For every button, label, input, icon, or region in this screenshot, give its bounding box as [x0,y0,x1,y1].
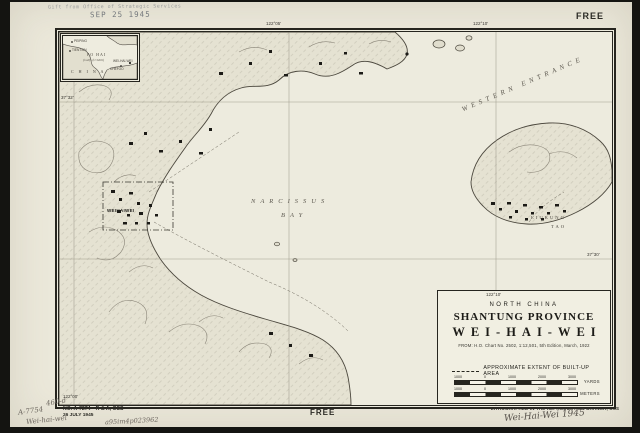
meters-tick: 1000 [454,387,462,391]
yards-tick: 1000 [508,375,516,379]
meters-tick: 2000 [538,387,546,391]
meridian-label-top-right: 122°10' [473,21,488,26]
bay-label-line1: NARCISSUS [251,198,329,205]
meters-bar [454,392,578,397]
inset-map: PEIPING TIENTSIN CHEFOO WEI-HAI-WEI PO H… [60,33,140,82]
meters-tick: 3000 [568,387,576,391]
island-label-tao: TAO [551,224,566,229]
bay-label-line2: BAY [281,212,307,219]
yards-tick: 3000 [568,375,576,379]
yards-tick-labels: 1000 0 1000 2000 3000 [454,375,576,379]
map-title: WEI-HAI-WEI [438,325,610,340]
inset-sea-sublabel: (Gulf of Chihli) [83,58,104,62]
meters-tick: 0 [484,387,486,391]
latitude-label-left: 37°32' [61,95,74,100]
city-label-weihaiwei: WEIHAIWEI [107,208,134,213]
stamp-date: SEP 25 1945 [90,9,181,19]
yards-tick: 0 [484,375,486,379]
dashdot-line-sample [452,371,479,372]
inset-inner-border: PEIPING TIENTSIN CHEFOO WEI-HAI-WEI PO H… [62,35,138,80]
meters-tick: 1000 [508,387,516,391]
title-region: NORTH CHINA [438,302,610,308]
inset-city-weihaiwei: WEI-HAI-WEI [113,59,132,63]
sheet-number-block: NO. A-7274—R & A, OSS 26 JULY 1945 [63,406,123,418]
scale-bar-meters: 1000 0 1000 2000 3000 METERS [454,387,600,398]
latitude-label-right: 37°30' [587,252,600,257]
inset-city-tientsin: TIENTSIN [72,48,87,52]
lighthouse-dot [405,52,408,55]
free-label-bottom: FREE [310,408,335,417]
scanned-map-photo: Gift from Office of Strategic Services S… [0,0,640,433]
inset-city-peiping: PEIPING [74,39,87,43]
scale-bar-yards: 1000 0 1000 2000 3000 YARDS [454,375,600,386]
inset-country-label: C H I N A [71,69,105,74]
island-label-liukung: LIUKUNG [531,215,566,220]
inset-city-chefoo: CHEFOO [110,67,124,71]
free-label-top: FREE [576,11,604,21]
title-source: FROM: H.O. Chart No. 2502, 1:12,501, 5th… [438,343,610,348]
meridian-label-top-left: 122°05' [266,21,281,26]
title-block: 122°10' NORTH CHINA SHANTUNG PROVINCE WE… [437,290,611,404]
yards-bar [454,380,578,385]
yards-unit: YARDS [584,379,600,384]
sheet-number: NO. A-7274—R & A, OSS [63,406,123,413]
inset-sea-label: PO HAI [87,52,106,57]
map-paper: Gift from Office of Strategic Services S… [10,2,632,427]
pencil-note-2: A-7754 [18,405,44,416]
meters-unit: METERS [580,391,600,396]
yards-tick: 1000 [454,375,462,379]
archive-stamp: Gift from Office of Strategic Services S… [48,3,182,19]
pencil-note-3: Wei-hai-wei [26,414,68,426]
pencil-note-4: a95im4p023962 [105,416,159,427]
yards-tick: 2000 [538,375,546,379]
stamp-line1: Gift from Office of Strategic Services [48,3,181,10]
title-block-meridian-tick: 122°10' [486,292,501,297]
title-province: SHANTUNG PROVINCE [438,311,610,323]
meters-tick-labels: 1000 0 1000 2000 3000 [454,387,576,391]
